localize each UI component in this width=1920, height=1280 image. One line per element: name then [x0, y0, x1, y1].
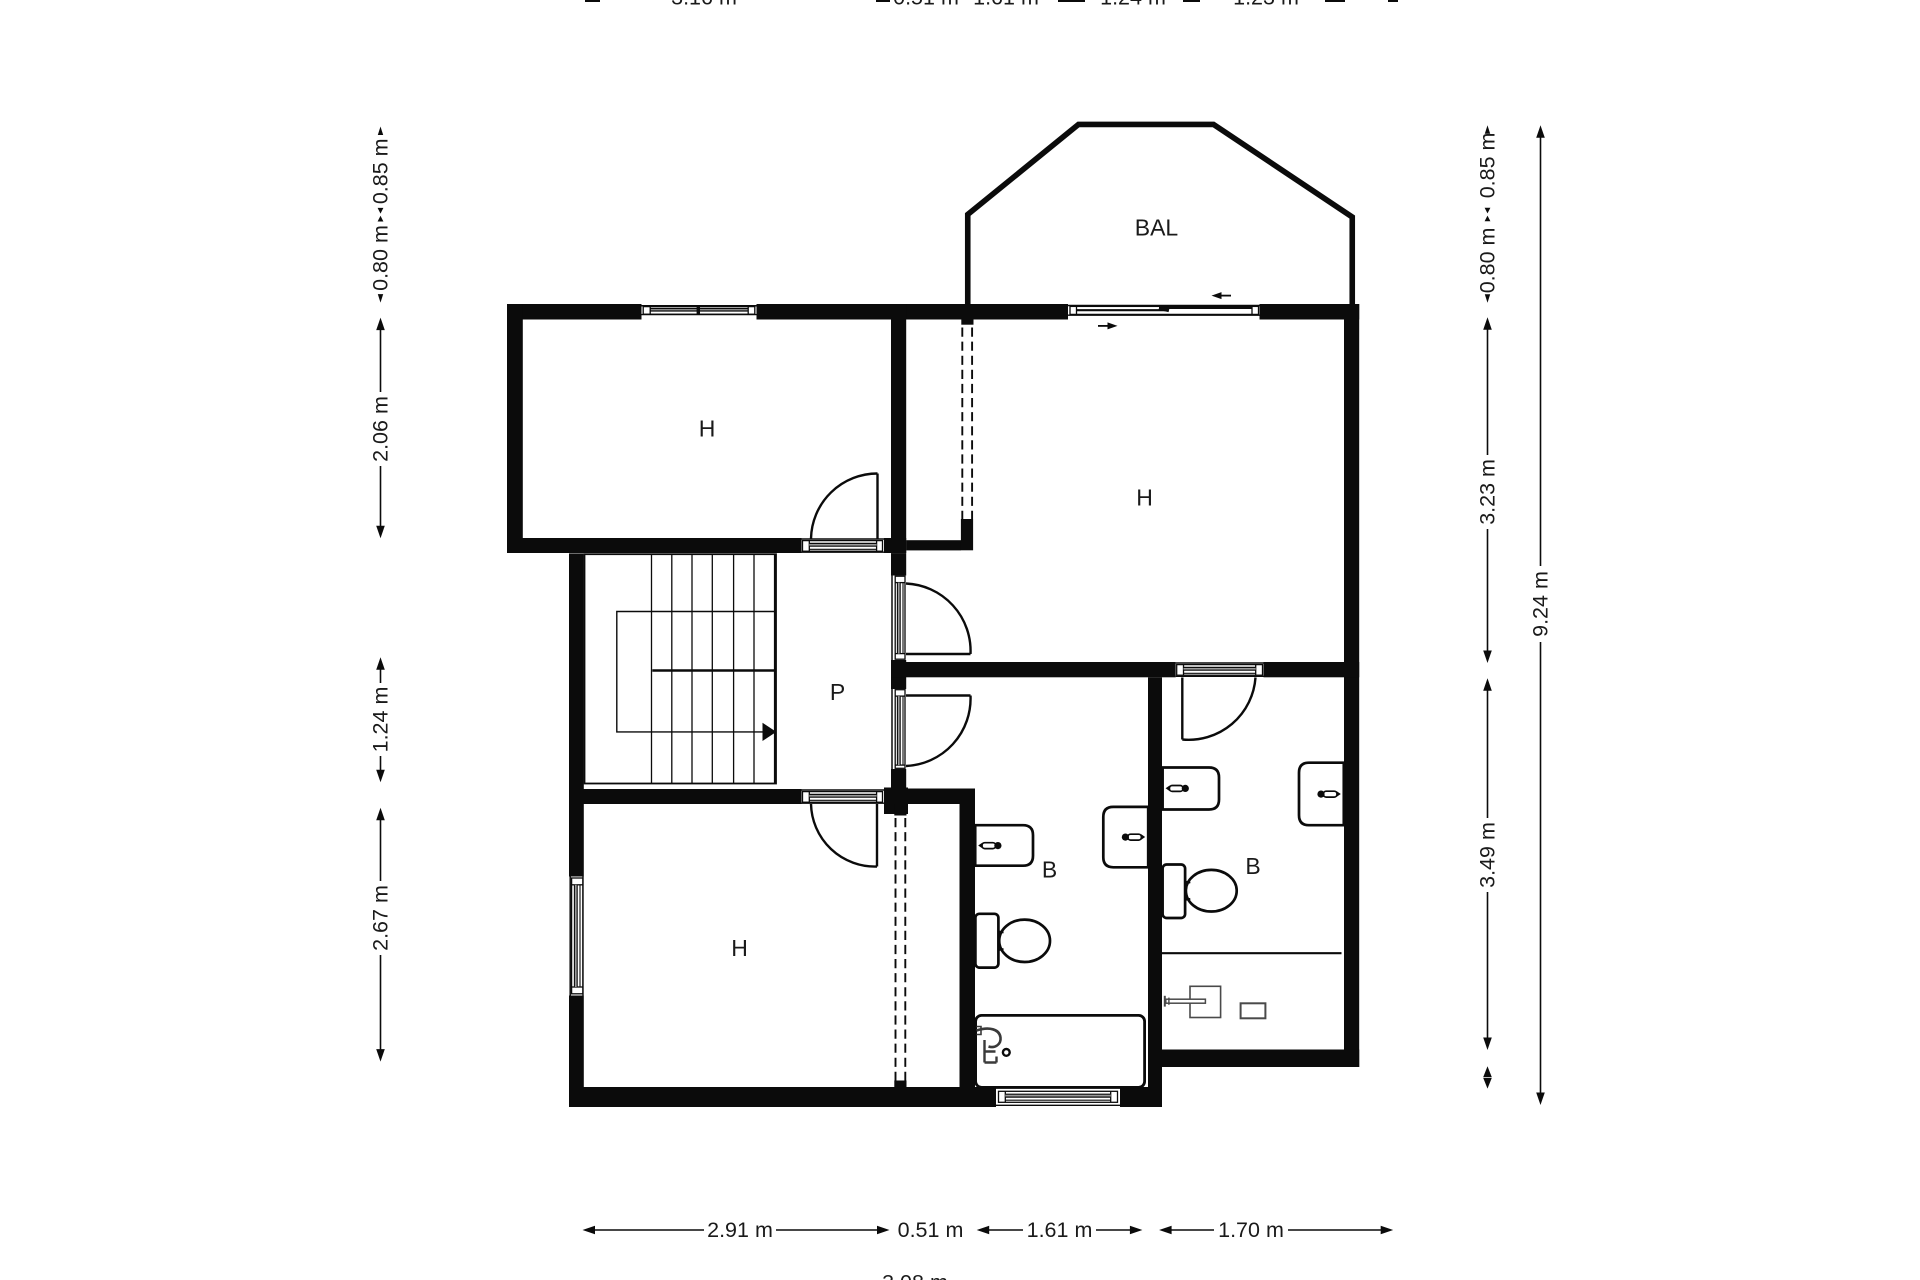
svg-text:2.67 m: 2.67 m	[369, 885, 393, 951]
svg-text:1.61 m: 1.61 m	[1027, 1218, 1093, 1242]
svg-text:BAL: BAL	[1135, 214, 1179, 240]
svg-text:1.24 m: 1.24 m	[369, 687, 393, 753]
svg-text:3.23 m: 3.23 m	[1476, 459, 1500, 525]
svg-text:3.16 m: 3.16 m	[671, 0, 737, 10]
svg-text:1.24 m: 1.24 m	[1100, 0, 1166, 10]
svg-text:B: B	[1245, 853, 1260, 879]
svg-text:1.61 m: 1.61 m	[973, 0, 1039, 10]
svg-text:3.08 m: 3.08 m	[882, 1271, 948, 1280]
svg-text:H: H	[699, 416, 716, 442]
svg-text:2.06 m: 2.06 m	[369, 396, 393, 462]
svg-text:0.85 m: 0.85 m	[369, 138, 393, 204]
svg-text:0.80 m: 0.80 m	[1476, 228, 1500, 294]
svg-text:P: P	[830, 679, 845, 705]
svg-text:H: H	[731, 935, 748, 961]
svg-text:1.70 m: 1.70 m	[1218, 1218, 1284, 1242]
svg-text:H: H	[1136, 485, 1153, 511]
svg-text:0.80 m: 0.80 m	[369, 225, 393, 291]
svg-text:1.23 m: 1.23 m	[1233, 0, 1299, 10]
svg-text:0.51 m: 0.51 m	[898, 1218, 964, 1242]
svg-text:9.24 m: 9.24 m	[1529, 571, 1553, 637]
svg-text:0.85 m: 0.85 m	[1476, 133, 1500, 199]
svg-text:0.51 m: 0.51 m	[893, 0, 959, 10]
svg-text:2.91 m: 2.91 m	[707, 1218, 773, 1242]
svg-text:3.49 m: 3.49 m	[1476, 822, 1500, 888]
svg-text:B: B	[1042, 857, 1057, 883]
